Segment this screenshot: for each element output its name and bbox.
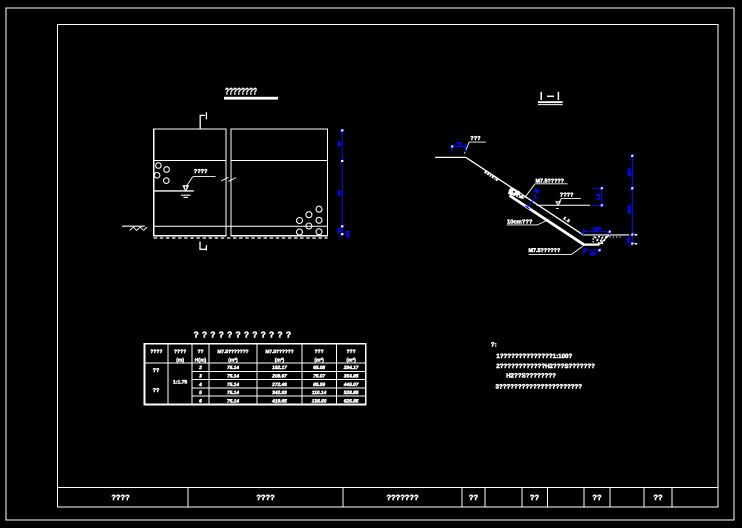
svg-text:2%: 2% bbox=[346, 230, 352, 238]
svg-text:????: ???? bbox=[194, 169, 208, 175]
svg-text:110.14: 110.14 bbox=[312, 390, 327, 396]
svg-text:1??????????????1:100?: 1??????????????1:100? bbox=[496, 353, 572, 360]
svg-text:3: 3 bbox=[199, 374, 202, 380]
svg-text:3??????????????????????: 3?????????????????????? bbox=[496, 384, 583, 391]
svg-text:H(m): H(m) bbox=[195, 358, 207, 364]
svg-text:????: ???? bbox=[111, 493, 130, 502]
svg-text:75: 75 bbox=[456, 142, 462, 148]
svg-text:294.17: 294.17 bbox=[343, 365, 359, 371]
svg-text:2????????????H2???S???????: 2????????????H2???S??????? bbox=[496, 363, 595, 370]
svg-text:(m³): (m³) bbox=[275, 358, 285, 364]
svg-text:???: ??? bbox=[470, 136, 481, 142]
svg-text:75.14: 75.14 bbox=[227, 374, 239, 380]
svg-text:??: ?? bbox=[153, 368, 160, 374]
svg-text:75.14: 75.14 bbox=[227, 398, 239, 404]
svg-text:342.63: 342.63 bbox=[272, 390, 287, 396]
svg-text:2: 2 bbox=[198, 365, 202, 371]
svg-text:445.07: 445.07 bbox=[343, 382, 359, 388]
svg-text:??: ?? bbox=[153, 388, 160, 394]
svg-text:M7.5???????: M7.5??????? bbox=[217, 349, 248, 355]
svg-text:272.46: 272.46 bbox=[271, 382, 287, 388]
svg-text:????: ???? bbox=[150, 349, 162, 355]
svg-text:(m³): (m³) bbox=[314, 358, 324, 364]
svg-text:???: ??? bbox=[315, 349, 324, 355]
svg-text:250: 250 bbox=[627, 168, 633, 176]
svg-text:??: ?? bbox=[530, 493, 540, 502]
svg-text:50: 50 bbox=[590, 252, 596, 258]
svg-text:??: ?? bbox=[469, 493, 479, 502]
svg-text:M7.5??????: M7.5?????? bbox=[529, 248, 561, 254]
svg-text:100: 100 bbox=[593, 226, 601, 232]
svg-text:75.14: 75.14 bbox=[227, 365, 239, 371]
svg-text:????: ???? bbox=[174, 349, 186, 355]
svg-text:??: ?? bbox=[592, 493, 602, 502]
svg-text:H2??S????????: H2??S???????? bbox=[506, 372, 556, 379]
svg-text:75.14: 75.14 bbox=[227, 382, 239, 388]
svg-text:85.59: 85.59 bbox=[313, 382, 325, 388]
svg-text:4: 4 bbox=[198, 382, 202, 388]
svg-text:??: ?? bbox=[197, 349, 203, 355]
svg-text:75.14: 75.14 bbox=[227, 390, 239, 396]
svg-text:(m): (m) bbox=[176, 358, 184, 364]
svg-text:(m³): (m³) bbox=[228, 358, 238, 364]
svg-text:20: 20 bbox=[337, 228, 343, 234]
svg-text:6: 6 bbox=[199, 398, 202, 404]
svg-text:65: 65 bbox=[337, 190, 343, 196]
svg-text:152.17: 152.17 bbox=[272, 365, 287, 371]
svg-text:50: 50 bbox=[626, 237, 632, 243]
svg-text:(m³): (m³) bbox=[346, 358, 356, 364]
svg-text:???????: ??????? bbox=[386, 493, 418, 502]
svg-text:625.85: 625.85 bbox=[344, 398, 359, 404]
svg-text:?:: ?: bbox=[491, 342, 497, 349]
svg-text:5: 5 bbox=[199, 390, 202, 396]
svg-text:419.65: 419.65 bbox=[271, 398, 287, 404]
svg-text:1:1.75: 1:1.75 bbox=[173, 380, 187, 386]
svg-text:????????: ???????? bbox=[225, 87, 257, 98]
svg-text:????: ???? bbox=[256, 493, 275, 502]
svg-text:138.50: 138.50 bbox=[312, 398, 327, 404]
svg-text:208.97: 208.97 bbox=[271, 374, 287, 380]
svg-text:1.8: 1.8 bbox=[596, 193, 602, 200]
svg-text:????: ???? bbox=[560, 193, 574, 199]
svg-text:30: 30 bbox=[337, 141, 343, 147]
svg-text:65.08: 65.08 bbox=[313, 365, 325, 371]
svg-text:75.07: 75.07 bbox=[313, 374, 325, 380]
svg-text:528.85: 528.85 bbox=[344, 390, 359, 396]
svg-text:???: ??? bbox=[347, 349, 356, 355]
svg-text:????????????: ???????????? bbox=[194, 330, 295, 340]
svg-text:??: ?? bbox=[653, 493, 663, 502]
svg-text:M7.5??????: M7.5?????? bbox=[265, 349, 293, 355]
svg-text:10cm???: 10cm??? bbox=[507, 218, 533, 225]
svg-text:354.85: 354.85 bbox=[344, 374, 359, 380]
svg-text:500: 500 bbox=[627, 205, 633, 213]
